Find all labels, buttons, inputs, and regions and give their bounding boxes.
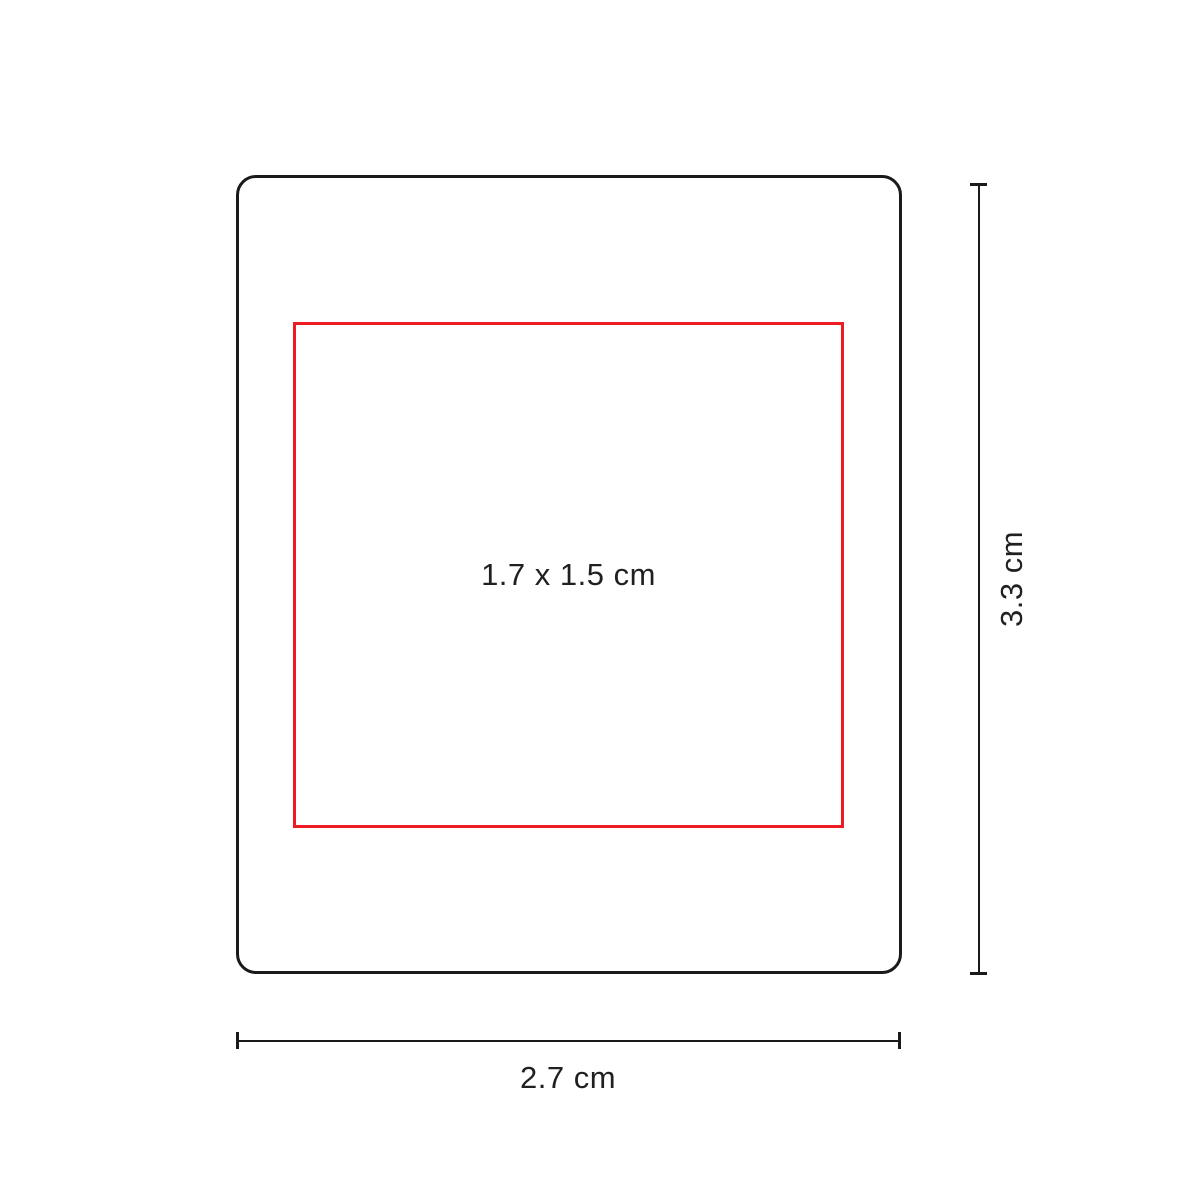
height-dimension-line-shaft (978, 186, 980, 972)
diagram-canvas: 1.7 x 1.5 cm 3.3 cm 2.7 cm (0, 0, 1200, 1200)
print-area-size-label: 1.7 x 1.5 cm (481, 557, 656, 593)
print-area-rect: 1.7 x 1.5 cm (293, 322, 844, 828)
width-dimension-line (236, 1032, 901, 1049)
width-dimension-label: 2.7 cm (520, 1060, 616, 1096)
height-dimension-line (970, 183, 987, 975)
width-dimension-line-shaft (239, 1040, 898, 1042)
height-dimension-label: 3.3 cm (994, 531, 1030, 627)
